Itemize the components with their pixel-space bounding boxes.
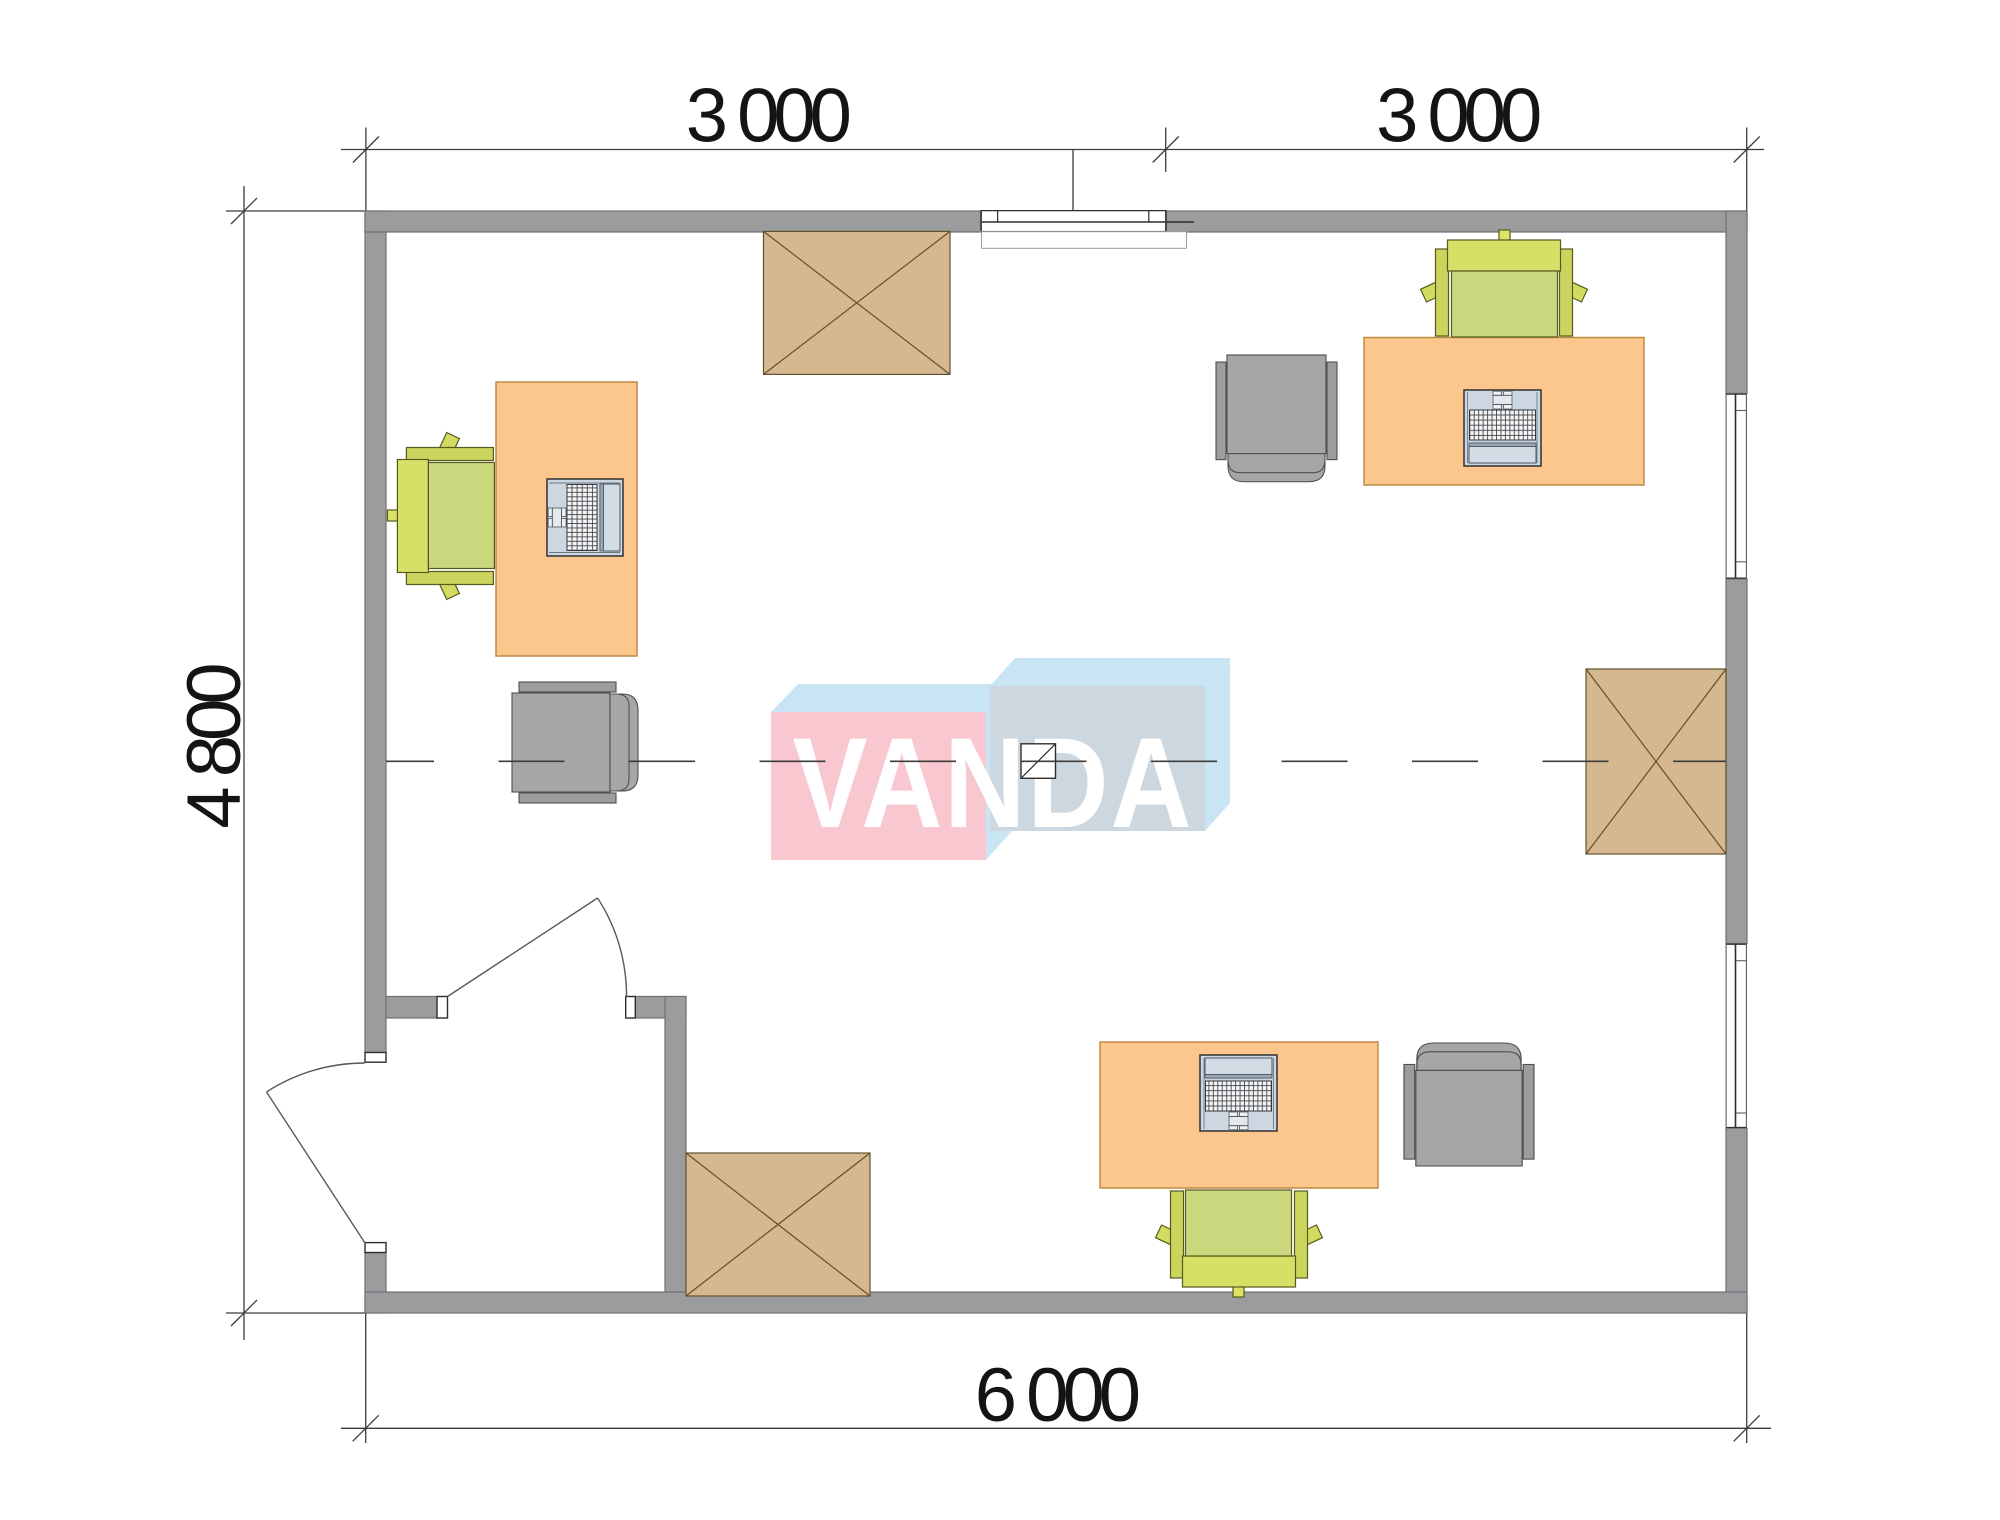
svg-text:3 000: 3 000 [1376,73,1540,158]
svg-text:VANDA: VANDA [793,711,1194,854]
svg-text:6 000: 6 000 [975,1353,1139,1438]
svg-text:3 000: 3 000 [686,73,850,158]
svg-text:4 800: 4 800 [172,665,257,829]
